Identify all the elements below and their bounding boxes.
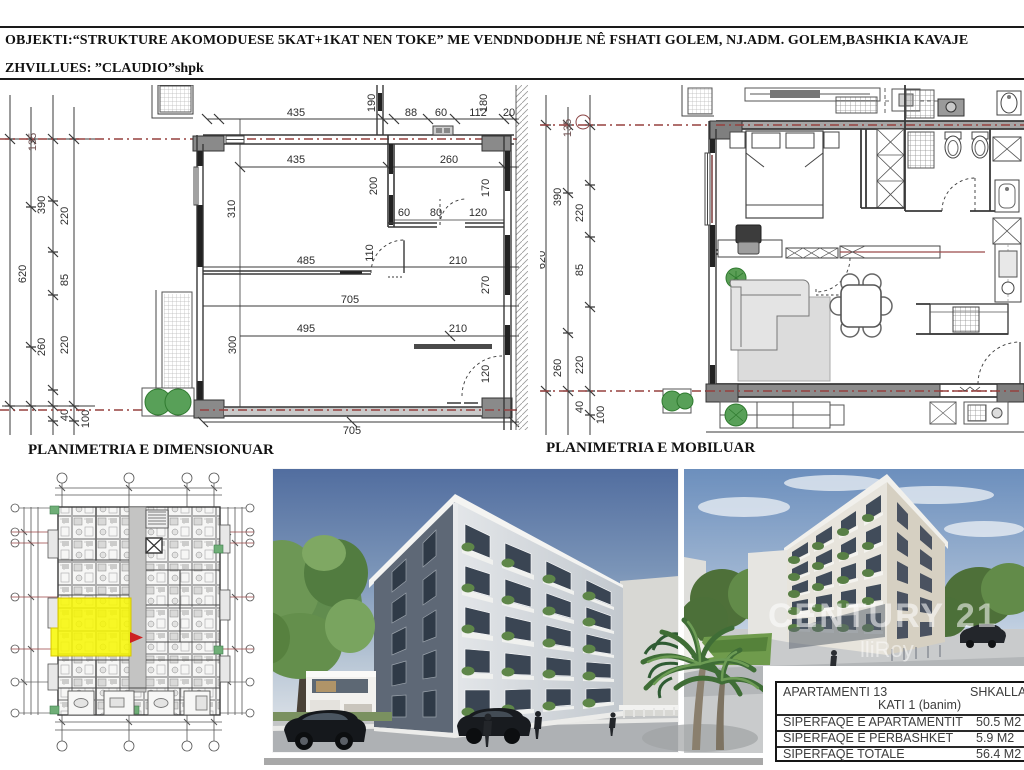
svg-text:270: 270 [480,276,492,294]
svg-text:20: 20 [503,107,515,119]
svg-text:190: 190 [366,94,378,112]
svg-text:40: 40 [574,401,586,413]
svg-text:100: 100 [80,410,92,428]
svg-text:200: 200 [368,177,380,195]
svg-text:310: 310 [226,200,238,218]
svg-text:85: 85 [574,264,586,276]
svg-text:300: 300 [227,336,239,354]
svg-text:495: 495 [297,323,315,335]
svg-text:435: 435 [287,107,305,119]
svg-text:260: 260 [552,359,564,377]
svg-text:88: 88 [405,107,417,119]
svg-text:60: 60 [435,107,447,119]
svg-text:100: 100 [595,406,607,424]
svg-text:120: 120 [469,207,487,219]
svg-text:135: 135 [562,119,574,137]
svg-text:485: 485 [297,255,315,267]
svg-text:180: 180 [478,94,490,112]
svg-text:220: 220 [574,204,586,222]
svg-text:220: 220 [59,336,71,354]
svg-text:210: 210 [449,323,467,335]
svg-text:135: 135 [27,133,39,151]
svg-text:620: 620 [540,251,548,269]
svg-text:260: 260 [440,154,458,166]
svg-text:40: 40 [59,409,71,421]
svg-text:220: 220 [59,207,71,225]
svg-text:CENTURY 21: CENTURY 21 [768,597,998,635]
svg-text:390: 390 [36,196,48,214]
svg-text:260: 260 [36,338,48,356]
svg-text:220: 220 [574,356,586,374]
svg-text:620: 620 [17,265,29,283]
svg-text:lliRoy: lliRoy [860,637,914,662]
svg-text:60: 60 [398,207,410,219]
svg-text:390: 390 [552,188,564,206]
svg-text:210: 210 [449,255,467,267]
svg-text:120: 120 [480,365,492,383]
svg-text:170: 170 [480,179,492,197]
svg-text:85: 85 [59,274,71,286]
svg-text:705: 705 [343,425,361,435]
svg-text:435: 435 [287,154,305,166]
svg-text:705: 705 [341,294,359,306]
